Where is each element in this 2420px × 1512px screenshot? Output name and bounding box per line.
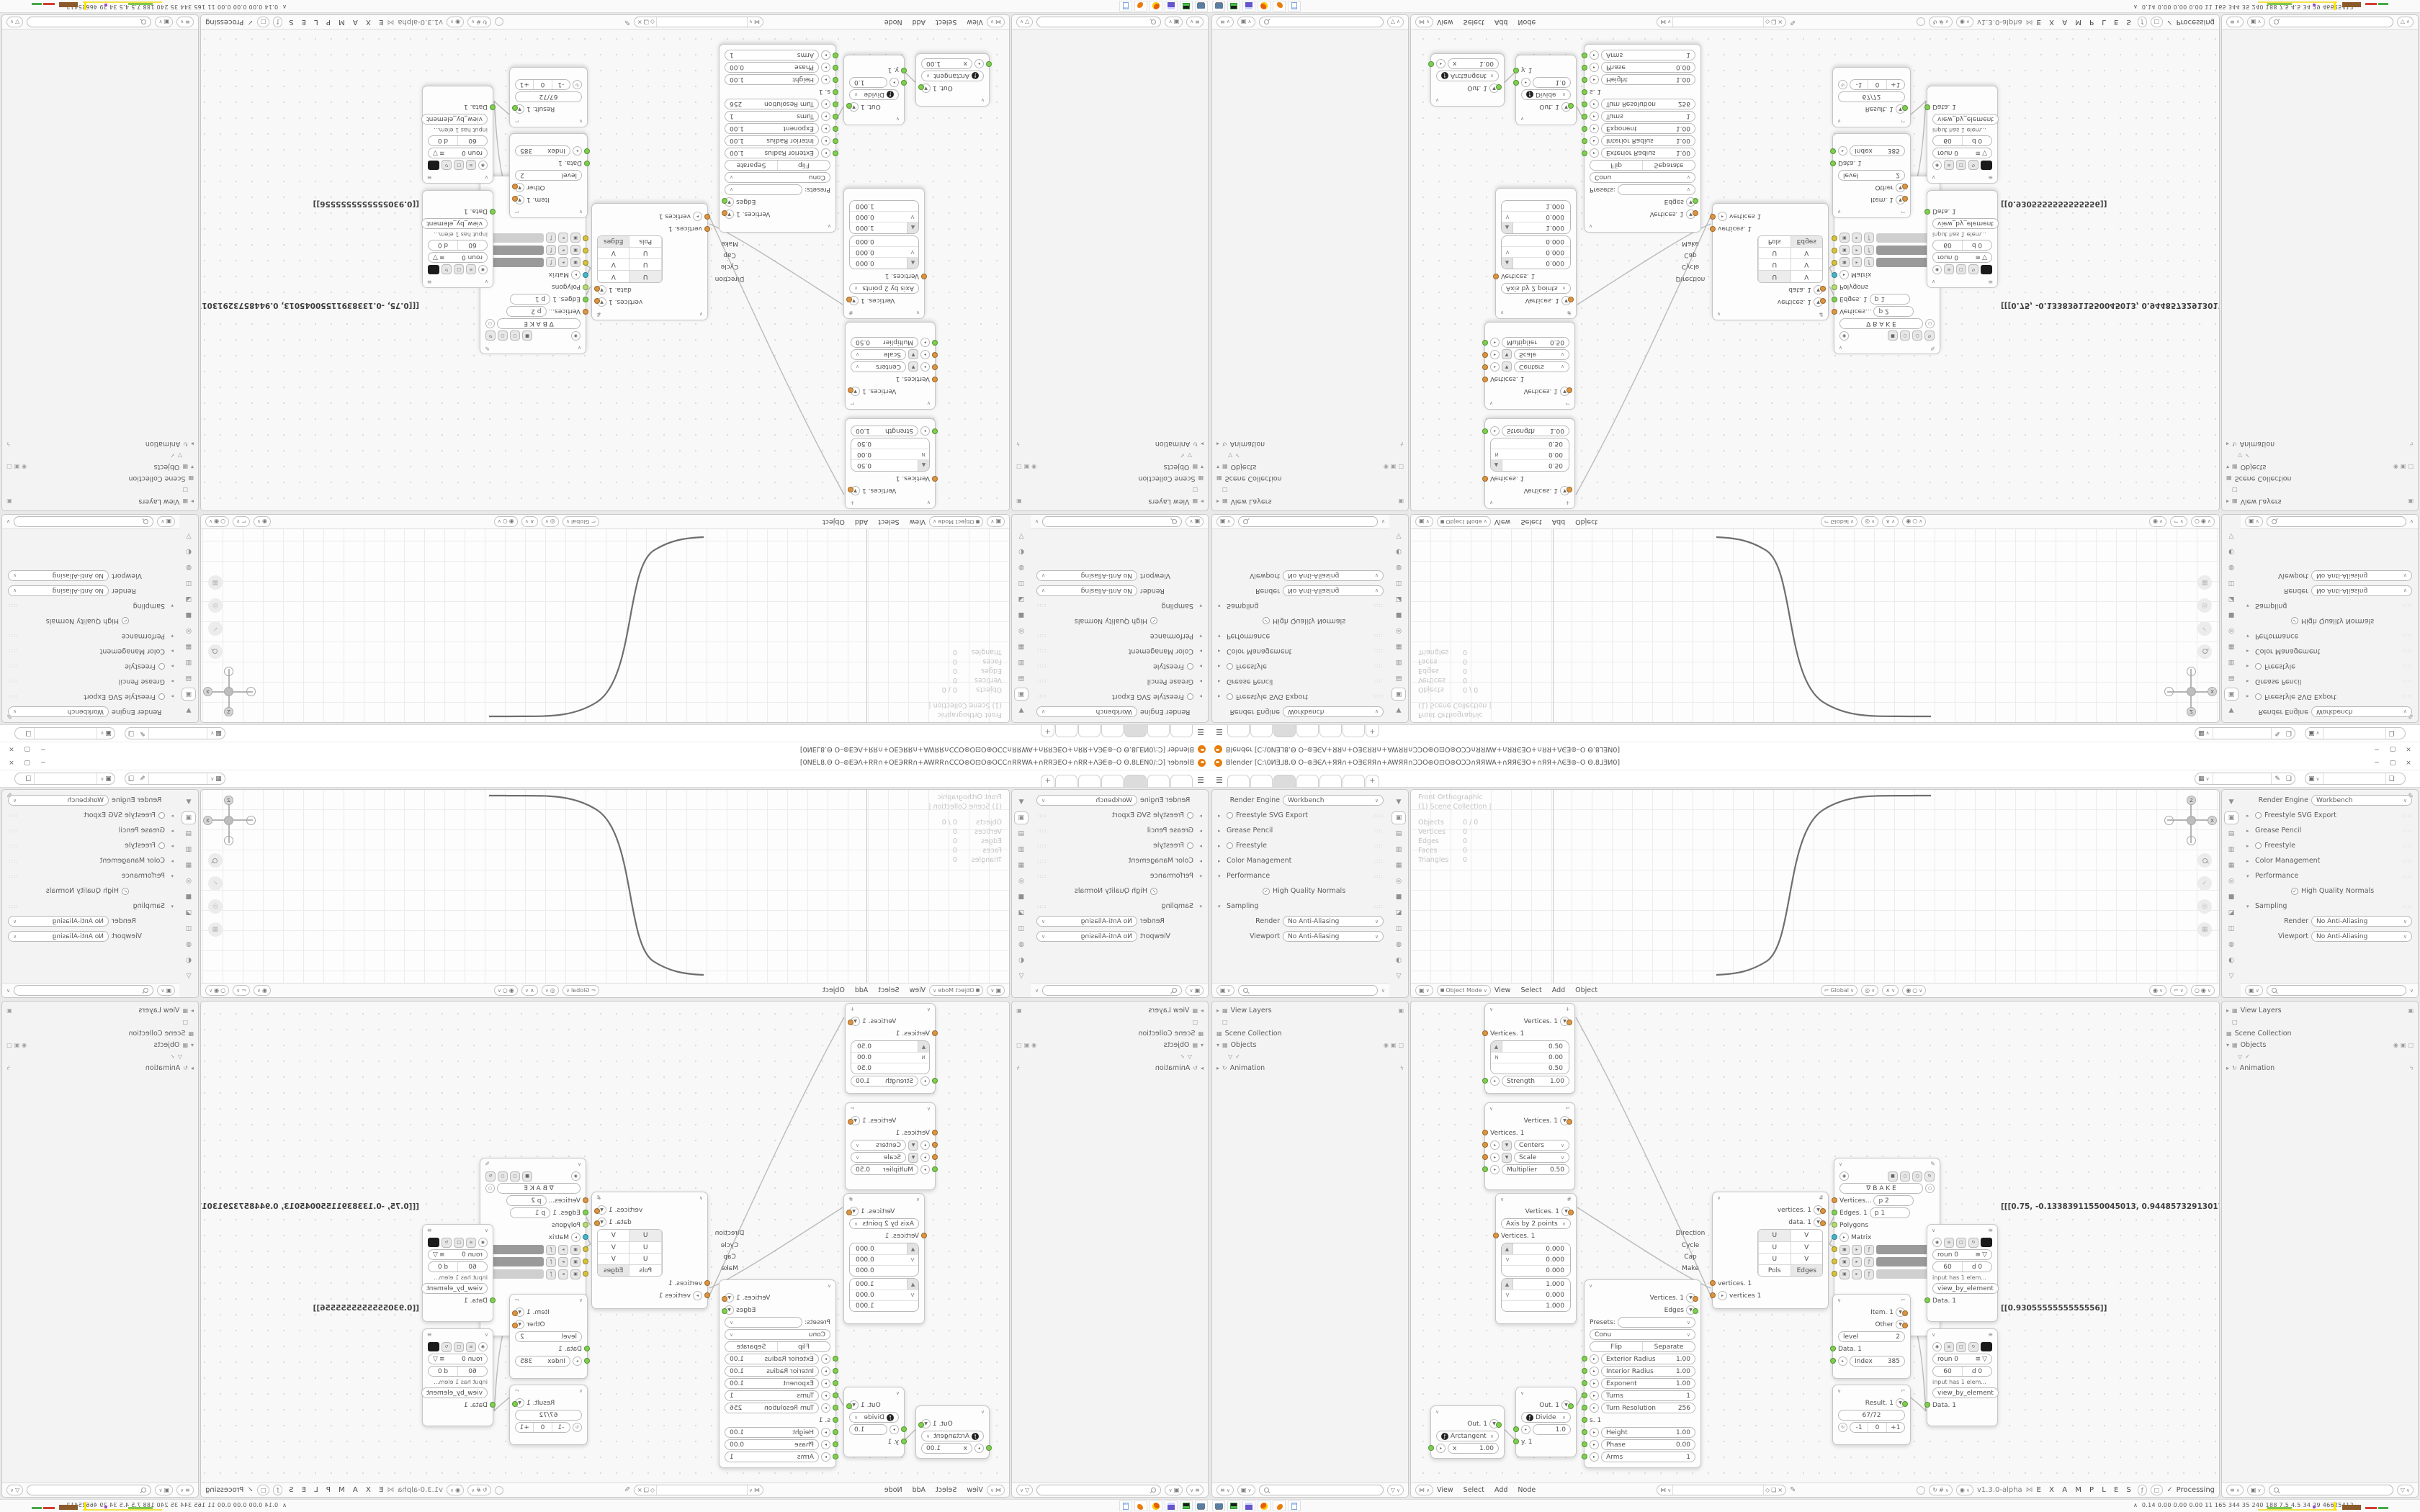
scale-select[interactable]: Scale∨: [1514, 349, 1569, 360]
scale-select[interactable]: Scale∨: [1514, 1152, 1569, 1163]
input-socket[interactable]: [901, 1426, 907, 1432]
minimize-button[interactable]: ─: [2372, 760, 2381, 767]
menu-view[interactable]: View: [1494, 986, 1511, 994]
scene-tab[interactable]: ▦: [1391, 859, 1406, 872]
input-socket[interactable]: [1482, 428, 1488, 434]
particles-tab[interactable]: ◫: [1014, 577, 1028, 590]
node-axis-by-2-points[interactable]: ∨# Vertices. 1▼ Axis by 2 points∨ Vertic…: [843, 1193, 925, 1324]
multiplier-field[interactable]: Multiplier0.50: [1502, 1164, 1569, 1175]
editor-type-button[interactable]: ▣∨: [155, 1485, 173, 1495]
menu-view[interactable]: View: [910, 518, 926, 526]
render-aa-select[interactable]: No Anti-Aliasing∨: [8, 585, 109, 596]
blank-circle-icon[interactable]: [495, 1486, 503, 1495]
close-button[interactable]: ×: [7, 760, 16, 767]
menu-view[interactable]: View: [967, 1486, 983, 1494]
camera-icon[interactable]: ▣: [14, 1042, 20, 1048]
node-arctangent[interactable]: ∨ Out. 1▼ ƒArctangent∨ ▸x1.00: [915, 53, 990, 107]
presets-select[interactable]: ∨: [1618, 184, 1695, 195]
interior-radius-field[interactable]: Interior Radius1.00: [1601, 1366, 1695, 1377]
view-layer-tab[interactable]: ▥: [1391, 843, 1406, 856]
input-socket[interactable]: [833, 102, 838, 107]
orientation-select[interactable]: ⌐Global∨: [563, 985, 599, 996]
outliner-scene-collection[interactable]: ▦Scene Collection: [1012, 473, 1208, 485]
width-fields[interactable]: 60d 0: [1932, 240, 1992, 251]
menu-node[interactable]: Node: [1518, 18, 1536, 26]
node-uv-connection[interactable]: ∨# vertices. 1▼ data. 1▼ DirectionUV Cyc…: [1712, 203, 1829, 320]
taskbar-device-app-icon[interactable]: [1180, 1, 1193, 12]
menu-select[interactable]: Select: [878, 986, 899, 994]
shading-buttons[interactable]: ○◉∨: [2191, 516, 2215, 527]
render-toggle-icon[interactable]: □: [6, 464, 12, 471]
menu-view[interactable]: View: [967, 18, 983, 26]
tool-tab[interactable]: ▼: [181, 703, 196, 716]
uv-table[interactable]: DirectionUV CycleUV CapUV MakePolsEdges: [597, 235, 663, 283]
node-result[interactable]: ∨⌐ Result. 1▼ 67/72 ↻-10+1: [1832, 67, 1911, 127]
vector-b-field[interactable]: ▲1.000 V0.000 1.000: [1501, 200, 1571, 234]
outliner-search-input[interactable]: [1036, 1485, 1161, 1495]
taskbar-screenshot-app-icon[interactable]: [1212, 1, 1225, 12]
outliner-animation[interactable]: ▸↻Animationϟ: [2222, 438, 2418, 450]
update-button[interactable]: ƒ: [273, 1485, 282, 1495]
render-tab[interactable]: ▣: [1014, 811, 1028, 824]
input-socket[interactable]: [901, 1439, 907, 1444]
x-field[interactable]: x1.00: [1448, 1443, 1499, 1454]
node-stethoscope-viewer[interactable]: ∨≡ ◉≡□↻ roun 0≡▽ 60d 0 input has 1 elem.…: [1927, 86, 1998, 184]
new-scene-icon[interactable]: ❏: [125, 773, 137, 784]
node-noise[interactable]: ∨+ Vertices. 1▼ Vertices. 1 ▲0.50 N0.00 …: [1484, 1003, 1575, 1094]
constraints-tab[interactable]: ◐: [2224, 954, 2238, 967]
input-socket[interactable]: [1493, 1233, 1499, 1238]
gizmo-x-axis[interactable]: X: [2208, 687, 2217, 696]
editor-type-button[interactable]: ▣∨: [1165, 1485, 1183, 1495]
color-swatch[interactable]: [485, 233, 544, 243]
workspace-tab[interactable]: [1296, 775, 1319, 787]
x-field[interactable]: x1.00: [1448, 58, 1499, 69]
modifier-tab[interactable]: ◪: [181, 593, 196, 606]
modifier-tab[interactable]: ◪: [1014, 593, 1028, 606]
properties-search-input[interactable]: [1042, 516, 1182, 527]
outliner-animation[interactable]: ▸↻Animationϟ: [2222, 1062, 2418, 1074]
world-tab[interactable]: ◎: [2224, 624, 2238, 637]
viewport-3d[interactable]: Front Orthographic (1) Scene Collection …: [200, 514, 1010, 723]
properties-search-input[interactable]: [14, 985, 153, 996]
color-swatch[interactable]: [428, 161, 439, 170]
interior-radius-field[interactable]: Interior Radius1.00: [725, 135, 819, 146]
output-socket[interactable]: [1693, 1308, 1698, 1314]
node-result[interactable]: ∨⌐ Result. 1▼ 67/72 ↻-10+1: [1832, 1385, 1911, 1445]
menu-object[interactable]: Object: [823, 986, 845, 994]
outliner-view-layers[interactable]: ▸▦View Layers▣: [2, 1004, 198, 1016]
input-socket[interactable]: [1482, 1030, 1488, 1036]
sverchok-node-editor[interactable]: ∨+ Vertices. 1▼ Vertices. 1 ▲0.50 N0.00 …: [1410, 14, 2220, 511]
phase-field[interactable]: Phase0.00: [1601, 1439, 1695, 1450]
data-tab[interactable]: ▽: [1014, 529, 1028, 542]
scene-selector[interactable]: ▦∨ ✎ ❏: [2195, 727, 2295, 739]
workspace-tab[interactable]: [1250, 725, 1273, 737]
output-socket[interactable]: [1496, 84, 1502, 90]
index-field[interactable]: Index385: [1850, 1356, 1905, 1367]
input-socket[interactable]: [583, 235, 588, 241]
mode-select[interactable]: ■Object Mode∨: [929, 516, 983, 527]
overlay-button[interactable]: ◉∨: [447, 17, 464, 27]
physics-tab[interactable]: ◍: [1014, 938, 1028, 951]
pin-icon[interactable]: ✎: [624, 1486, 630, 1494]
outliner-objects[interactable]: ▾▦Objects◉▣□: [1012, 1039, 1208, 1050]
output-socket[interactable]: [848, 1020, 853, 1025]
input-socket[interactable]: [1493, 274, 1499, 279]
particles-tab[interactable]: ◫: [1014, 922, 1028, 935]
copy-icon[interactable]: ❏: [1771, 1487, 1776, 1493]
output-tab[interactable]: ▤: [1014, 827, 1028, 840]
taskbar-firefox-icon[interactable]: [1149, 1, 1162, 12]
input-socket[interactable]: [1832, 284, 1837, 290]
width-fields[interactable]: 60d 0: [428, 1366, 488, 1377]
viewport-3d[interactable]: Front Orthographic (1) Scene Collection …: [1410, 789, 2220, 998]
panel-sampling[interactable]: ▾Sampling::::: [2241, 598, 2418, 613]
editor-type-button[interactable]: ▣∨: [2245, 516, 2263, 527]
output-socket[interactable]: [512, 184, 518, 189]
outliner-animation[interactable]: ▸↻Animationϟ: [1012, 438, 1208, 450]
render-tab[interactable]: ▣: [181, 811, 196, 824]
particles-tab[interactable]: ◫: [2224, 922, 2238, 935]
render-aa-select[interactable]: No Anti-Aliasing∨: [1283, 585, 1384, 596]
view-by-element-button[interactable]: view_by_element: [1932, 218, 1999, 229]
workspace-tab[interactable]: [1319, 775, 1342, 787]
multiplier-field[interactable]: Multiplier0.50: [1502, 337, 1569, 348]
node-stethoscope-viewer[interactable]: ∨≡ ◉≡□↻ roun 0≡▽ 60d 0 input has 1 elem.…: [1927, 1224, 1998, 1322]
visibility-button[interactable]: ◉∨: [2149, 985, 2166, 996]
object-tab[interactable]: ■: [1014, 608, 1028, 621]
input-socket[interactable]: [833, 1429, 838, 1435]
filter-funnel-icon[interactable]: ▽: [1188, 453, 1192, 459]
gizmo-y-axis[interactable]: [224, 687, 233, 696]
render-aa-select[interactable]: No Anti-Aliasing∨: [8, 916, 109, 927]
checkbox[interactable]: [1187, 842, 1193, 849]
multiplier-field[interactable]: Multiplier0.50: [851, 337, 918, 348]
centers-select[interactable]: Centers∨: [851, 361, 906, 372]
output-socket[interactable]: [918, 1422, 924, 1428]
width-fields[interactable]: 60d 0: [1932, 1366, 1992, 1377]
high-quality-normals-toggle[interactable]: ✓High Quality Normals: [1212, 883, 1389, 899]
input-socket[interactable]: [1428, 1445, 1434, 1451]
input-socket[interactable]: [921, 274, 927, 279]
output-socket[interactable]: [1820, 1208, 1826, 1214]
gizmo-x-neg[interactable]: [246, 687, 256, 696]
workspace-tab-active[interactable]: [1273, 775, 1296, 787]
properties-search-input[interactable]: [2267, 516, 2406, 527]
pivot-select[interactable]: ◎∨: [542, 985, 559, 996]
flip-separate-toggle[interactable]: FlipSeparate: [1590, 1341, 1695, 1352]
input-socket[interactable]: [932, 1142, 938, 1148]
exponent-field[interactable]: Exponent1.00: [1601, 1378, 1695, 1389]
world-tab[interactable]: ◎: [1391, 624, 1406, 637]
properties-search-input[interactable]: [1238, 516, 1378, 527]
input-socket[interactable]: [932, 364, 938, 370]
orientation-select[interactable]: ⌐Global∨: [1821, 985, 1857, 996]
console-button[interactable]: □: [2151, 1485, 2164, 1495]
render-toggle-icon[interactable]: □: [1398, 1042, 1404, 1048]
input-socket[interactable]: [1482, 352, 1488, 358]
arms-field[interactable]: Arms1: [1601, 50, 1695, 60]
render-aa-select[interactable]: No Anti-Aliasing∨: [2311, 585, 2412, 596]
zoom-icon[interactable]: [208, 644, 223, 659]
visibility-button[interactable]: ◉∨: [254, 516, 271, 527]
fraction-field[interactable]: 67/72: [515, 91, 582, 102]
particles-tab[interactable]: ◫: [1391, 922, 1406, 935]
menu-select[interactable]: Select: [1464, 1486, 1484, 1494]
checkbox[interactable]: [2255, 693, 2262, 700]
height-field[interactable]: Height1.00: [1601, 74, 1695, 85]
output-tab[interactable]: ▤: [181, 827, 196, 840]
output-socket[interactable]: [1567, 387, 1572, 393]
snap-grid-button[interactable]: ↻#∨: [467, 17, 491, 27]
filter-button[interactable]: ▽∨: [2397, 1485, 2414, 1495]
taskbar-blender-icon[interactable]: [1134, 1500, 1147, 1511]
presets-select[interactable]: ∨: [725, 1317, 802, 1328]
gizmo-x-axis[interactable]: X: [2208, 816, 2217, 825]
output-socket[interactable]: [1693, 210, 1698, 216]
outliner-search-input[interactable]: [27, 17, 151, 27]
filter-button[interactable]: ▽∨: [6, 1485, 23, 1495]
panel-sampling[interactable]: ▾Sampling::::: [1031, 899, 1208, 914]
node-arctangent[interactable]: ∨ Out. 1▼ ƒArctangent∨ ▸x1.00: [1430, 53, 1505, 107]
input-socket[interactable]: [1582, 1417, 1587, 1423]
taskbar-notepad-icon[interactable]: [1119, 1, 1132, 12]
presets-select[interactable]: ∨: [725, 184, 802, 195]
input-socket[interactable]: [1924, 104, 1930, 110]
restore-button[interactable]: ▢: [23, 746, 32, 753]
input-socket[interactable]: [901, 80, 907, 86]
exterior-radius-field[interactable]: Exterior Radius1.00: [725, 148, 819, 158]
input-socket[interactable]: [1582, 1454, 1587, 1459]
p1-field[interactable]: p 1: [1870, 294, 1910, 305]
update-button[interactable]: ƒ: [273, 17, 282, 27]
menu-select[interactable]: Select: [1520, 518, 1541, 526]
proportional-edit-button[interactable]: ◉○∨: [494, 985, 518, 996]
checkbox[interactable]: [158, 812, 165, 819]
phase-field[interactable]: Phase0.00: [725, 1439, 819, 1450]
modifier-tab[interactable]: ◪: [1391, 906, 1406, 919]
object-tab[interactable]: ■: [2224, 891, 2238, 904]
input-socket[interactable]: [583, 1271, 588, 1277]
render-tab[interactable]: ▣: [2224, 811, 2238, 824]
input-socket[interactable]: [986, 61, 992, 67]
panel-freestyle-svg[interactable]: ▸Freestyle SVG Export::::: [1031, 689, 1208, 704]
panel-grease-pencil[interactable]: ▸Grease Pencil::::: [2241, 674, 2418, 689]
view-by-element-button[interactable]: view_by_element: [421, 1283, 488, 1294]
color-swatch[interactable]: [485, 1269, 544, 1279]
outliner-scene-collection[interactable]: ▦Scene Collection: [2, 473, 198, 485]
editor-type-button[interactable]: ▣∨: [1415, 985, 1433, 996]
uv-table[interactable]: DirectionUV CycleUV CapUV MakePolsEdges: [1757, 1229, 1823, 1277]
camera-icon[interactable]: ▣: [2401, 1042, 2406, 1048]
checkbox[interactable]: [158, 693, 165, 700]
input-socket[interactable]: [1582, 65, 1587, 71]
input-socket[interactable]: [1513, 80, 1519, 86]
taskbar-notepad-icon[interactable]: [1288, 1500, 1301, 1511]
outliner-search-input[interactable]: [27, 1485, 151, 1495]
workspace-tab[interactable]: [1147, 775, 1170, 787]
vector-a-field[interactable]: ▲0.000 V0.000 0.000: [1501, 235, 1571, 269]
outliner-view-layers[interactable]: ▸▦View Layers▣: [2222, 496, 2418, 508]
p1-field[interactable]: p 1: [510, 294, 550, 305]
display-mode-button[interactable]: ≡∨: [176, 1485, 194, 1495]
input-socket[interactable]: [583, 272, 588, 278]
mode-select[interactable]: Conu∨: [1590, 1329, 1695, 1340]
input-socket[interactable]: [490, 1297, 496, 1303]
close-button[interactable]: ×: [2404, 746, 2413, 753]
rounding-field[interactable]: roun 0≡▽: [428, 1249, 488, 1260]
pin-icon[interactable]: ✎: [2272, 728, 2283, 739]
workspace-tab[interactable]: [1343, 775, 1365, 787]
options-chevron-icon[interactable]: ∨: [1035, 988, 1039, 994]
navigation-gizmo[interactable]: Z X: [2160, 796, 2220, 846]
input-socket[interactable]: [1582, 1441, 1587, 1447]
world-tab[interactable]: ◎: [181, 875, 196, 888]
panel-sampling[interactable]: ▾Sampling::::: [1212, 899, 1389, 914]
panel-color-management[interactable]: ▸Color Management::::: [1212, 644, 1389, 659]
taskbar-notepad-icon[interactable]: [1119, 1500, 1132, 1511]
proportional-edit-button[interactable]: ◉○∨: [494, 516, 518, 527]
physics-tab[interactable]: ◍: [2224, 561, 2238, 574]
input-socket[interactable]: [1710, 1280, 1716, 1286]
node-list-item[interactable]: ∨⌐ Item. 1▼ Other▼ level2 Data. 1 ▸Index…: [1832, 1294, 1911, 1379]
node-torus-knot[interactable]: ∨ Vertices. 1▼ Edges▼ Presets:∨ Conu∨ Fl…: [719, 44, 836, 233]
menu-node[interactable]: Node: [1518, 1486, 1536, 1494]
scene-tab[interactable]: ▦: [2224, 640, 2238, 653]
camera-view-icon[interactable]: ◎: [2197, 899, 2212, 914]
output-socket[interactable]: [722, 1308, 727, 1314]
output-socket[interactable]: [1568, 297, 1574, 302]
snap-button[interactable]: ∧∨: [1882, 985, 1899, 996]
object-tab[interactable]: ■: [181, 891, 196, 904]
rounding-field[interactable]: roun 0≡▽: [1932, 1354, 1992, 1364]
checkbox[interactable]: [2255, 842, 2262, 849]
panel-color-management[interactable]: ▸Color Management::::: [2, 644, 179, 659]
checkbox[interactable]: [2255, 663, 2262, 670]
mode-select[interactable]: ■Object Mode∨: [1437, 985, 1491, 996]
physics-tab[interactable]: ◍: [181, 561, 196, 574]
grid-ortho-icon[interactable]: ▦: [208, 922, 223, 937]
filter-button[interactable]: ▽∨: [1016, 1485, 1033, 1495]
modifier-tab[interactable]: ◪: [2224, 906, 2238, 919]
input-socket[interactable]: [932, 352, 938, 358]
input-socket[interactable]: [704, 1280, 710, 1286]
node-divide[interactable]: ∨ Out. 1▼ ƒDivide∨ ▸1.0 y. 1: [843, 55, 905, 125]
view-layer-tab[interactable]: ▥: [181, 656, 196, 669]
editor-type-button[interactable]: ▣∨: [1216, 516, 1234, 527]
function-select[interactable]: ƒArctangent∨: [921, 1431, 984, 1441]
tool-tab[interactable]: ▼: [1391, 703, 1406, 716]
render-tab[interactable]: ▣: [2224, 688, 2238, 701]
outliner-view-layers[interactable]: ▸▦View Layers▣: [1012, 496, 1208, 508]
panel-freestyle-svg[interactable]: ▸Freestyle SVG Export::::: [2, 689, 179, 704]
display-mode-button[interactable]: ≡∨: [2226, 17, 2244, 27]
input-socket[interactable]: [1482, 1166, 1488, 1172]
output-socket[interactable]: [512, 1310, 518, 1316]
workspace-tab[interactable]: [1078, 725, 1101, 737]
menu-object[interactable]: Object: [1575, 986, 1597, 994]
flip-separate-toggle[interactable]: FlipSeparate: [1590, 160, 1695, 171]
panel-performance[interactable]: ▾Performance::::: [1031, 868, 1208, 883]
physics-tab[interactable]: ◍: [2224, 938, 2238, 951]
menu-select[interactable]: Select: [1464, 18, 1484, 26]
panel-performance[interactable]: ▾Performance::::: [2241, 868, 2418, 883]
checkbox[interactable]: [1227, 663, 1233, 670]
input-socket[interactable]: [1513, 1439, 1519, 1444]
node-move[interactable]: ∨⌐ Vertices. 1▼ Vertices. 1 ▸▼Centers∨ ▸…: [1484, 1102, 1575, 1190]
outliner-search-input[interactable]: [1036, 17, 1161, 27]
outliner-search-input[interactable]: [1259, 1485, 1384, 1495]
menu-add[interactable]: Add: [1494, 1486, 1507, 1494]
outliner-animation[interactable]: ▸↻Animationϟ: [1212, 438, 1408, 450]
step-buttons[interactable]: -10+1: [1850, 1422, 1905, 1433]
menu-object[interactable]: Object: [823, 518, 845, 526]
input-socket[interactable]: [1830, 161, 1836, 166]
taskbar-screenshot-app-icon[interactable]: [1212, 1500, 1225, 1511]
node-axis-by-2-points[interactable]: ∨# Vertices. 1▼ Axis by 2 points∨ Vertic…: [1495, 188, 1577, 319]
gizmo-z-neg[interactable]: [224, 836, 233, 845]
index-field[interactable]: Index385: [515, 145, 570, 156]
render-engine-select[interactable]: Workbench∨: [2311, 706, 2412, 717]
outliner-animation[interactable]: ▸↻Animationϟ: [1212, 1062, 1408, 1074]
eye-icon[interactable]: ◉: [1031, 1042, 1036, 1048]
taskbar-floppy64-app-icon[interactable]: [1242, 1500, 1255, 1511]
output-socket[interactable]: [1902, 1310, 1908, 1316]
level-field[interactable]: level2: [515, 170, 582, 181]
viewport-aa-select[interactable]: No Anti-Aliasing∨: [1036, 570, 1137, 581]
input-socket[interactable]: [583, 1259, 588, 1264]
filter-funnel-icon[interactable]: ▽: [178, 453, 182, 459]
color-swatch[interactable]: [1981, 1238, 1992, 1247]
visibility-button[interactable]: ◉∨: [2149, 516, 2166, 527]
rounding-field[interactable]: roun 0≡▽: [1932, 1249, 1992, 1260]
outliner-view-layers[interactable]: ▸▦View Layers▣: [1212, 496, 1408, 508]
panel-performance[interactable]: ▾Performance::::: [2, 629, 179, 644]
checkbox[interactable]: [1187, 663, 1193, 670]
editor-type-button[interactable]: ▣∨: [2245, 985, 2263, 996]
zoom-icon[interactable]: [2197, 853, 2212, 868]
node-uv-connection[interactable]: ∨# vertices. 1▼ data. 1▼ DirectionUV Cyc…: [591, 1192, 708, 1309]
menu-icon[interactable]: ☰: [1197, 727, 1204, 737]
turns-field[interactable]: Turns1: [725, 111, 819, 122]
gizmos-button[interactable]: ⌐∨: [233, 516, 250, 527]
node-move[interactable]: ∨⌐ Vertices. 1▼ Vertices. 1 ▸▼Centers∨ ▸…: [1484, 322, 1575, 410]
panel-grease-pencil[interactable]: ▸Grease Pencil::::: [2, 823, 179, 838]
viewport-3d[interactable]: Front Orthographic (1) Scene Collection …: [1410, 514, 2220, 723]
input-socket[interactable]: [833, 1454, 838, 1459]
blank-circle-icon[interactable]: [495, 18, 503, 27]
render-tab[interactable]: ▣: [1014, 688, 1028, 701]
panel-freestyle[interactable]: ▸Freestyle::::: [1212, 838, 1389, 853]
properties-search-input[interactable]: [2267, 985, 2406, 996]
options-chevron-icon[interactable]: ∨: [6, 988, 10, 994]
node-result[interactable]: ∨⌐ Result. 1▼ 67/72 ↻-10+1: [509, 67, 588, 127]
workspace-tab[interactable]: [1101, 725, 1124, 737]
workspace-tab[interactable]: [1055, 725, 1077, 737]
shading-buttons[interactable]: ○◉∨: [205, 985, 229, 996]
x-field[interactable]: x1.00: [921, 58, 972, 69]
output-socket[interactable]: [1693, 1296, 1698, 1302]
editor-type-button[interactable]: ▣∨: [987, 985, 1005, 996]
rounding-field[interactable]: roun 0≡▽: [1932, 252, 1992, 263]
output-socket[interactable]: [846, 103, 852, 109]
color-swatch[interactable]: [1981, 161, 1992, 170]
editor-type-button[interactable]: ▣∨: [1165, 17, 1183, 27]
interior-radius-field[interactable]: Interior Radius1.00: [725, 1366, 819, 1377]
turns-field[interactable]: Turns1: [725, 1390, 819, 1401]
grid-ortho-icon[interactable]: ▦: [2197, 575, 2212, 590]
